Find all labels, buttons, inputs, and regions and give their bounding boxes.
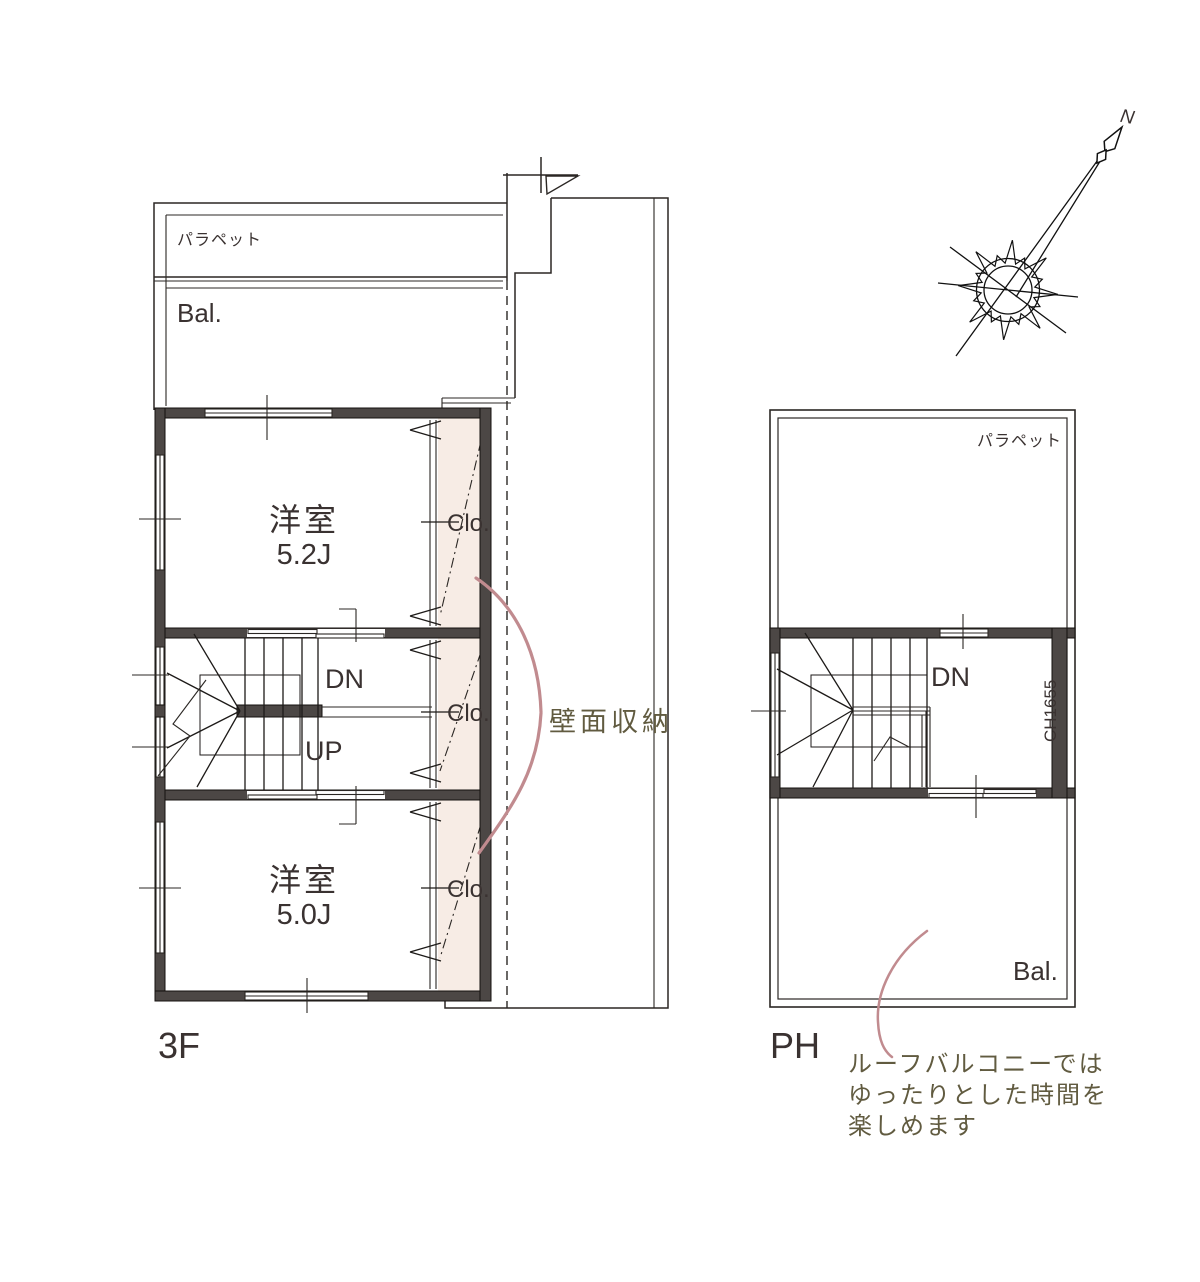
compass-rose-icon: N [938,106,1136,356]
room-upper-size: 5.2J [277,539,332,571]
room-upper-name: 洋室 [269,502,339,538]
room-lower-size: 5.0J [277,899,332,931]
floor-label-3f: 3F [158,1025,200,1066]
balcony-label-ph: Bal. [1013,956,1058,986]
closet-label-upper: Clo. [447,510,490,537]
parapet-label-ph: パラペット [977,433,1062,450]
plan-ph: パラペット DN CH1655 Bal. PH ルーフバルコニーでは ゆったりと… [751,410,1108,1140]
wall-storage-annotation: 壁面収納 [476,578,673,853]
plan-ph-boundary [770,410,1075,1007]
closet-label-middle: Clo. [447,700,490,727]
plan-3f-windows [132,395,385,1013]
balcony-label-3f: Bal. [177,298,222,328]
plan-ph-windows [751,614,1036,818]
floor-label-ph: PH [770,1025,820,1066]
plan-3f-boundary [154,157,668,1008]
plan-ph-stairs [777,633,930,788]
parapet-label-3f: パラペット [177,232,262,249]
roof-balcony-pointer [878,931,927,1057]
roof-note-line-2: ゆったりとした時間を [848,1082,1108,1109]
north-label: N [1119,106,1136,129]
room-lower-name: 洋室 [269,862,339,898]
plan-3f: パラペット Bal. 洋室 5.2J 洋室 5.0J DN UP Clo. Cl… [132,157,673,1066]
wall-storage-note: 壁面収納 [549,707,673,737]
roof-note-line-1: ルーフバルコニーでは [848,1051,1105,1078]
stair-down-label-3f: DN [325,664,364,694]
stair-up-label-3f: UP [305,736,343,766]
floor-plan-drawing: パラペット Bal. 洋室 5.2J 洋室 5.0J DN UP Clo. Cl… [0,0,1200,1282]
north-needle [956,127,1122,356]
stair-down-label-ph: DN [931,662,970,692]
ceiling-height-label: CH1655 [1041,680,1060,742]
roof-balcony-annotation: ルーフバルコニーでは ゆったりとした時間を 楽しめます [848,931,1108,1140]
roof-note-line-3: 楽しめます [848,1113,978,1140]
closet-label-lower: Clo. [447,876,490,903]
section-flag-icon [503,157,578,281]
floor-plan-page: パラペット Bal. 洋室 5.2J 洋室 5.0J DN UP Clo. Cl… [0,0,1200,1282]
